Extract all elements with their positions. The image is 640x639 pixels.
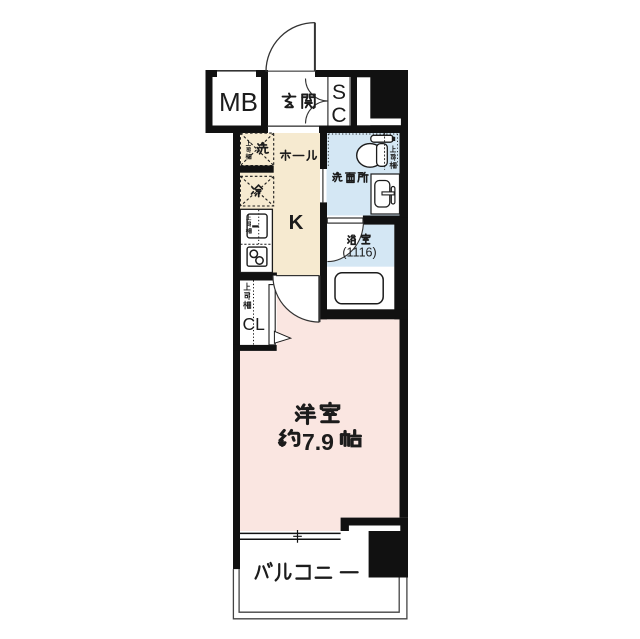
- svg-text:C: C: [331, 104, 346, 127]
- svg-text:K: K: [289, 211, 304, 234]
- svg-text:CL: CL: [243, 314, 266, 334]
- svg-text:(1116): (1116): [342, 246, 376, 260]
- svg-text:7.9: 7.9: [302, 429, 334, 455]
- svg-text:S: S: [332, 81, 346, 104]
- svg-text:MB: MB: [219, 87, 258, 117]
